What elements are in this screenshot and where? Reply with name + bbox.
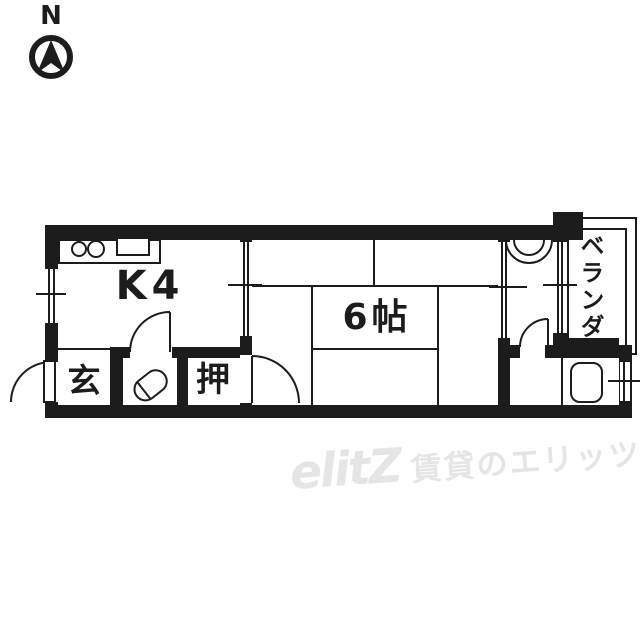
- floorplan-canvas: elitZ賃貸のエリッツ N: [0, 0, 640, 640]
- room-label-main-room: 6帖: [315, 300, 439, 336]
- entrance-door-leaf-icon: [44, 361, 55, 402]
- room-label-kitchen: K4: [95, 266, 205, 306]
- bathroom-door-swing-icon: [520, 319, 548, 347]
- washbasin-icon: [506, 240, 552, 263]
- room-label-entrance: 玄: [60, 364, 108, 397]
- toilet-icon: [130, 366, 171, 405]
- kitchen-door-swing-icon: [130, 312, 170, 352]
- north-arrow-icon: [37, 40, 65, 73]
- room-label-veranda: ベランダ: [578, 231, 602, 343]
- mainroom-door-swing-icon: [252, 356, 299, 403]
- room-label-closet: 押: [189, 363, 237, 397]
